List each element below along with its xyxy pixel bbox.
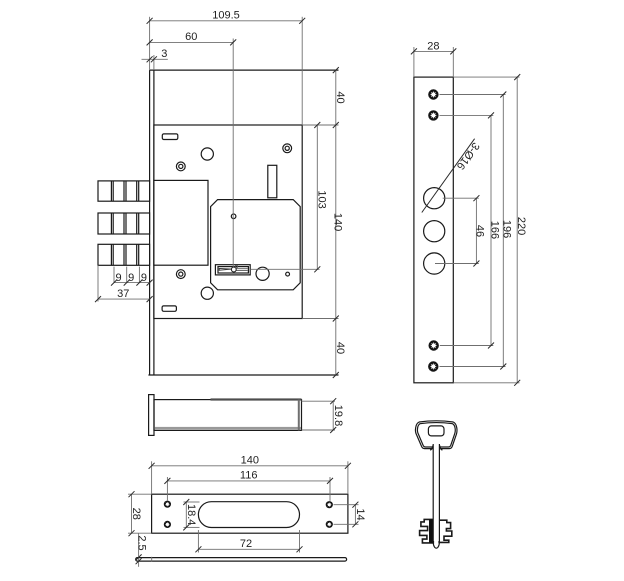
svg-text:28: 28 (427, 40, 439, 52)
svg-text:166: 166 (488, 221, 500, 239)
svg-text:37: 37 (117, 288, 129, 300)
svg-text:3: 3 (161, 48, 167, 60)
svg-text:2.5: 2.5 (135, 535, 147, 550)
svg-text:140: 140 (332, 213, 344, 231)
svg-text:18.4: 18.4 (185, 504, 197, 525)
svg-text:109.5: 109.5 (212, 9, 240, 21)
svg-text:103: 103 (316, 190, 328, 208)
svg-text:9: 9 (141, 272, 147, 284)
svg-text:28: 28 (130, 508, 142, 520)
svg-text:9: 9 (128, 272, 134, 284)
svg-text:72: 72 (240, 538, 252, 550)
svg-text:140: 140 (241, 454, 259, 466)
svg-text:196: 196 (501, 220, 513, 238)
svg-text:40: 40 (334, 91, 346, 103)
svg-text:46: 46 (474, 225, 486, 237)
svg-text:3-Ø16: 3-Ø16 (454, 140, 482, 172)
svg-text:19.8: 19.8 (332, 405, 344, 426)
svg-text:40: 40 (334, 342, 346, 354)
svg-text:220: 220 (515, 217, 527, 235)
svg-text:60: 60 (185, 31, 197, 43)
svg-text:116: 116 (240, 470, 258, 482)
svg-text:14: 14 (354, 508, 366, 520)
svg-text:9: 9 (116, 272, 122, 284)
